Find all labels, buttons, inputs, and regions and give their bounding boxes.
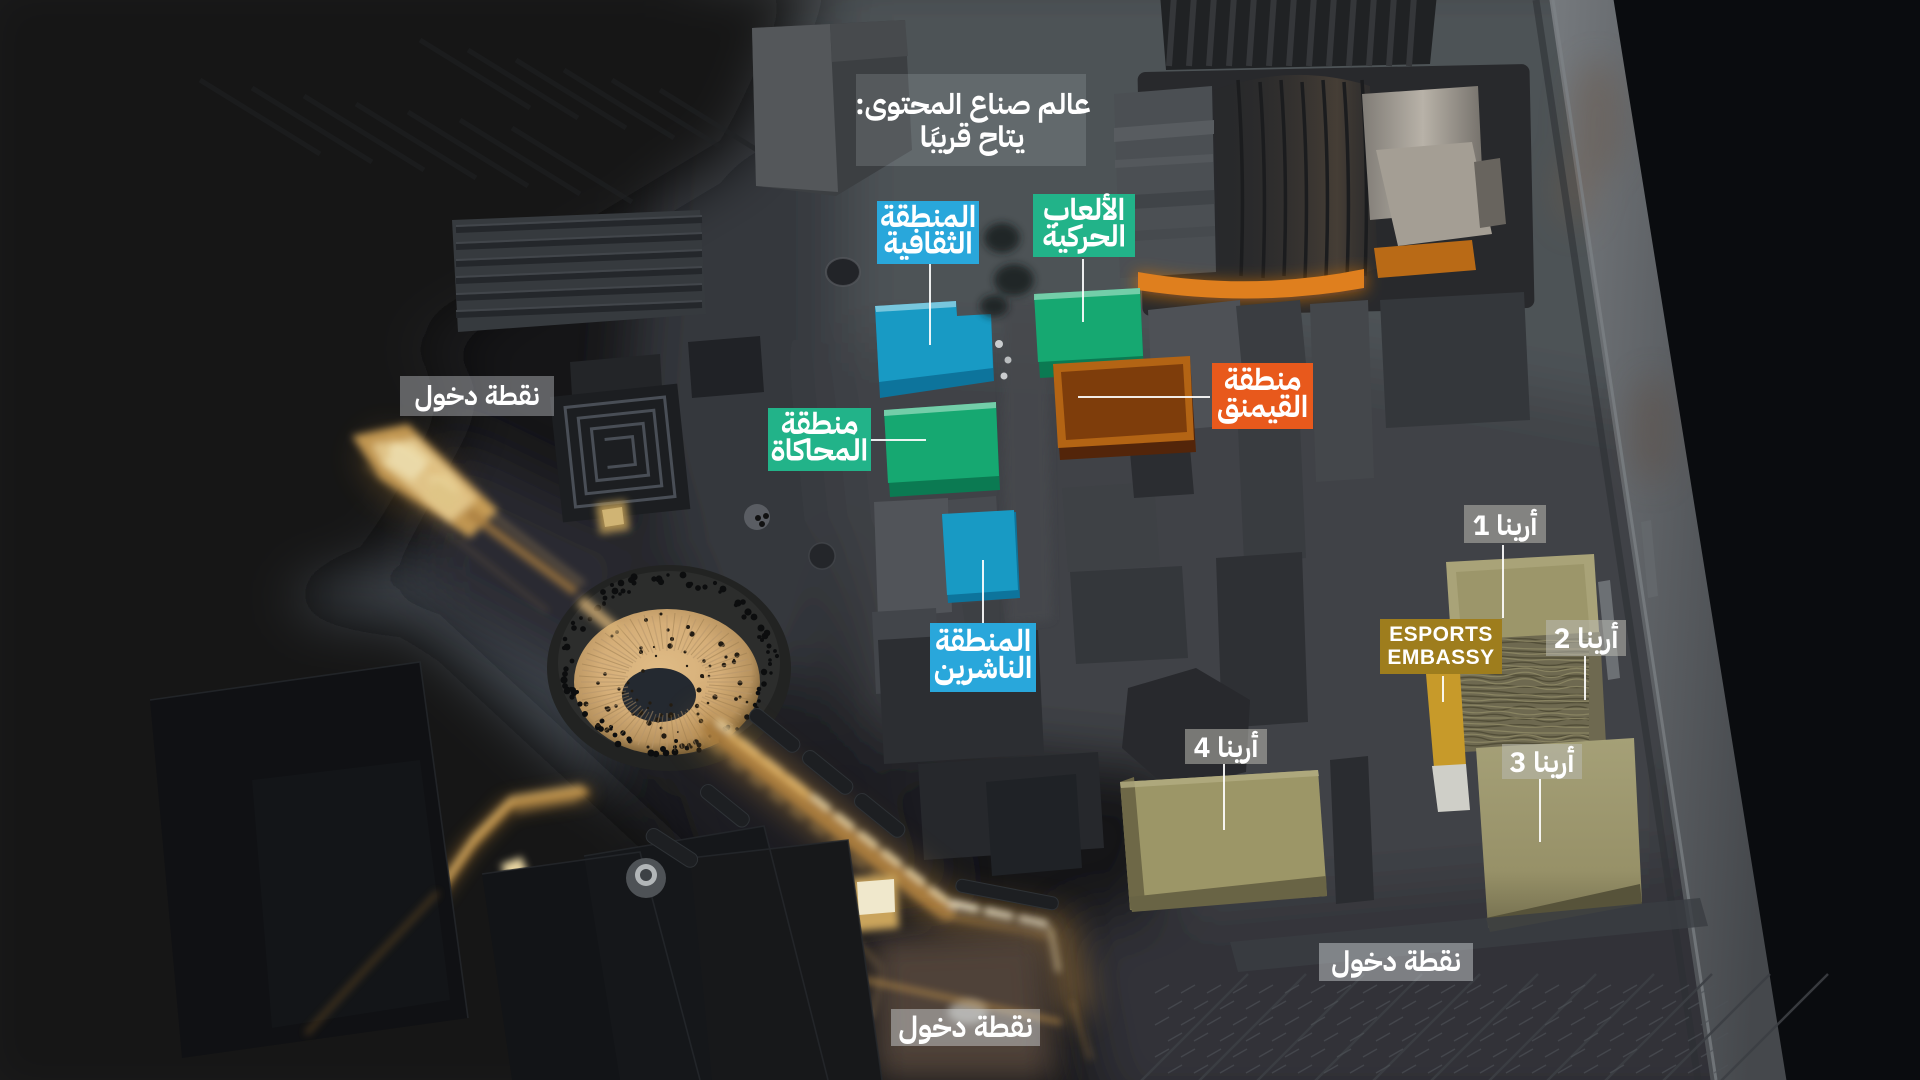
svg-text:EMBASSY: EMBASSY	[1387, 646, 1494, 669]
svg-text:ESPORTS: ESPORTS	[1389, 623, 1493, 646]
